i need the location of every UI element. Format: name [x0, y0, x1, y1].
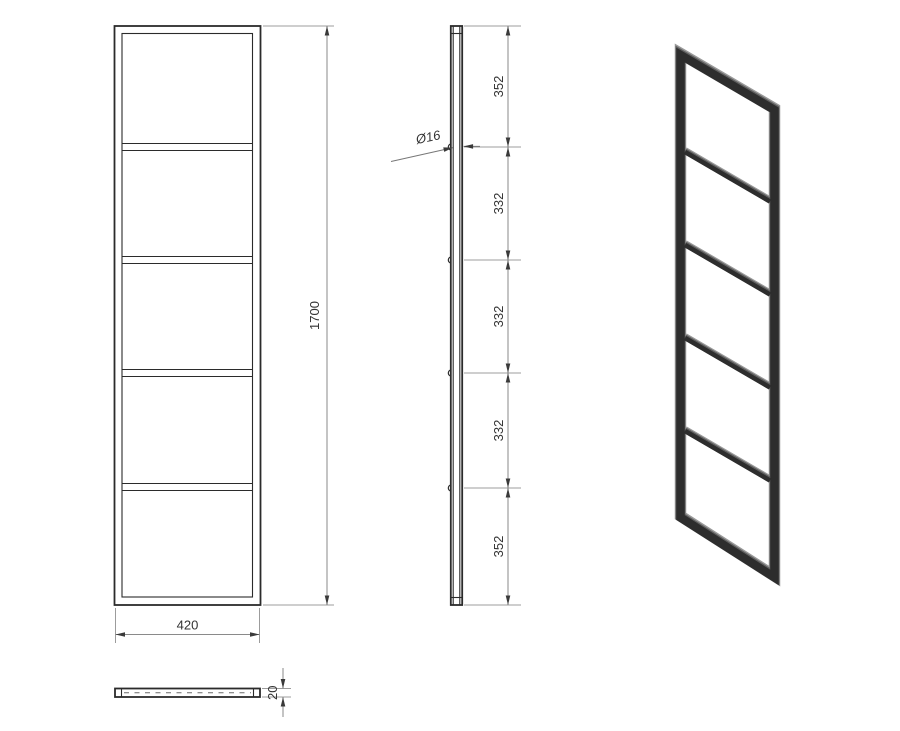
arrowhead-left: [116, 632, 126, 637]
arrowhead-up: [506, 26, 511, 36]
dimension-height-1700: 1700: [263, 26, 334, 605]
arrowhead-down: [506, 251, 511, 261]
side-profile: [451, 26, 462, 605]
front-view: [115, 26, 261, 605]
technical-drawing-canvas: 1700 420 20: [0, 0, 900, 731]
dimension-label-segment-3: 332: [491, 306, 506, 328]
front-rung-2: [122, 257, 253, 264]
towel-ladder-drawing: 1700 420 20: [0, 0, 900, 731]
dimension-label-segment-4: 332: [491, 420, 506, 442]
dimension-label-segment-2: 332: [491, 193, 506, 215]
iso-frame: [681, 54, 775, 577]
arrowhead-down: [506, 364, 511, 374]
dimension-label-thickness: 20: [265, 686, 280, 700]
iso-front-layer: [681, 55, 775, 578]
dimension-label-segment-1: 352: [491, 76, 506, 98]
arrowhead-up: [506, 373, 511, 383]
dimension-label-segment-5: 352: [491, 536, 506, 558]
arrowhead-up: [506, 488, 511, 498]
arrowhead-down: [281, 679, 286, 689]
front-inner-frame: [122, 34, 253, 598]
arrowhead-up: [281, 697, 286, 707]
arrowhead-up: [506, 260, 511, 270]
side-dimension-chain: 352 332 332 332 352: [464, 26, 521, 605]
iso-mid-layer: [681, 54, 775, 577]
iso-highlight-layer: [681, 54, 775, 577]
arrowhead-down: [506, 596, 511, 606]
dimension-label-height: 1700: [307, 301, 322, 330]
iso-rung: [685, 431, 770, 481]
dimension-width-420: 420: [116, 608, 260, 643]
front-outer-frame: [115, 26, 261, 605]
iso-view: [681, 54, 775, 578]
diameter-callout: Ø16: [391, 127, 480, 161]
dimension-thickness-20: 20: [262, 668, 291, 717]
arrowhead-left: [464, 144, 474, 149]
arrowhead-down: [506, 479, 511, 489]
arrowhead-down: [506, 138, 511, 148]
front-rung-3: [122, 370, 253, 377]
arrowhead-right: [250, 632, 260, 637]
arrowhead-down: [325, 596, 330, 606]
dimension-label-width: 420: [177, 618, 199, 633]
iso-rung: [685, 338, 770, 388]
leader-line: [391, 148, 453, 162]
bottom-view: [115, 689, 260, 698]
iso-frame: [681, 55, 775, 578]
dimension-label-diameter: Ø16: [414, 127, 443, 147]
arrowhead-up: [325, 26, 330, 36]
iso-rung: [685, 152, 770, 202]
front-rung-4: [122, 484, 253, 491]
iso-frame: [681, 54, 775, 577]
side-view: [448, 26, 462, 605]
arrowhead-up: [506, 147, 511, 157]
front-rung-1: [122, 144, 253, 151]
iso-rung: [685, 245, 770, 295]
